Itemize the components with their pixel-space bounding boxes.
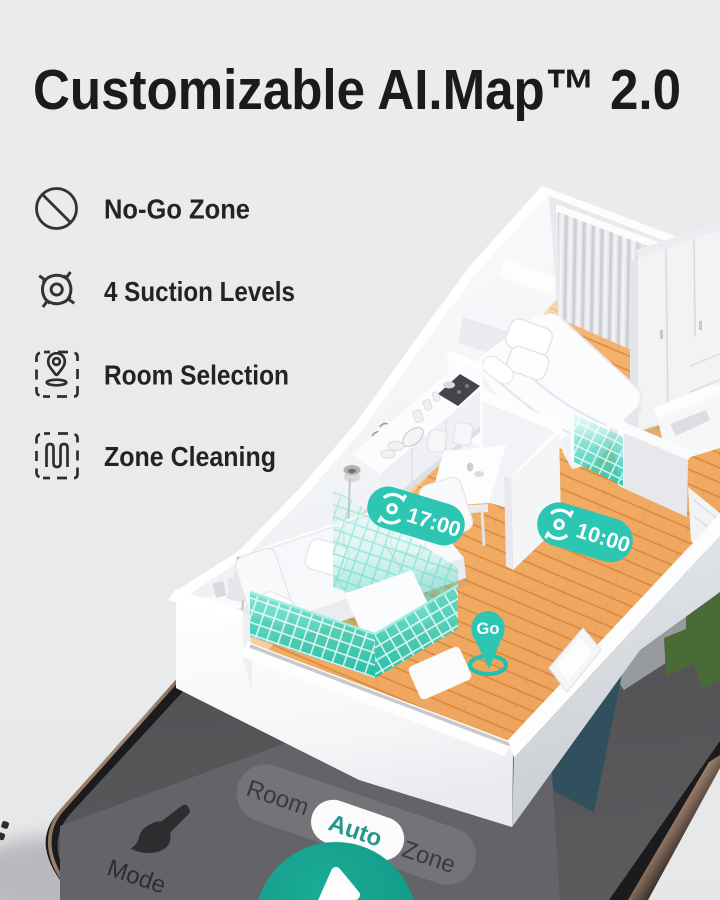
svg-text:Go: Go (477, 620, 500, 638)
svg-text:No-Go Zone: No-Go Zone (104, 194, 250, 225)
svg-text:4 Suction Levels: 4 Suction Levels (104, 276, 295, 307)
svg-text:Customizable AI.Map™ 2.0: Customizable AI.Map™ 2.0 (33, 58, 681, 122)
svg-text:Zone Cleaning: Zone Cleaning (104, 441, 276, 472)
svg-text:Room Selection: Room Selection (104, 360, 289, 391)
